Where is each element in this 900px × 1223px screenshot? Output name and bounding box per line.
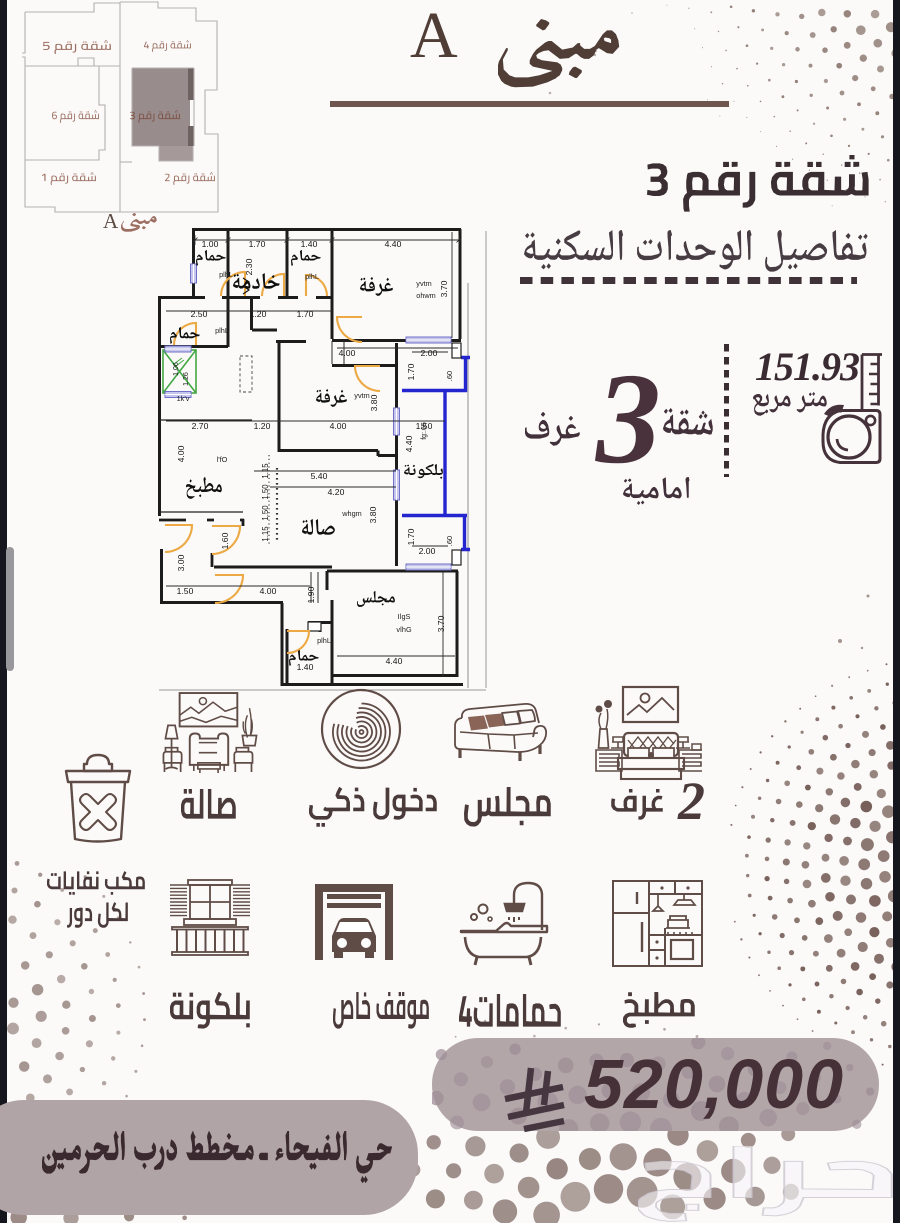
svg-text:.60: .60 xyxy=(445,371,454,381)
svg-text:ohwm: ohwm xyxy=(416,291,435,300)
svg-text:1.26: 1.26 xyxy=(183,372,190,386)
svg-text:4.20: 4.20 xyxy=(328,487,345,497)
svg-text:3.70: 3.70 xyxy=(439,280,449,297)
svg-text:plhL: plhL xyxy=(305,272,319,281)
svg-text:4.40: 4.40 xyxy=(385,239,402,249)
svg-text:1.06: 1.06 xyxy=(173,362,180,376)
svg-text:vǀhG: vǀhG xyxy=(396,625,412,634)
svg-text:plhL: plhL xyxy=(317,636,331,645)
svg-text:yvtm: yvtm xyxy=(354,391,369,400)
svg-text:fg:.65: fg:.65 xyxy=(421,422,428,440)
svg-text:1.20: 1.20 xyxy=(250,309,267,319)
svg-text:1.15: 1.15 xyxy=(261,463,270,479)
svg-text:4.40: 4.40 xyxy=(404,435,414,452)
svg-text:l'fO: l'fO xyxy=(217,455,228,464)
svg-text:4.40: 4.40 xyxy=(386,656,403,666)
svg-text:plhL: plhL xyxy=(219,270,233,279)
svg-text:1.50: 1.50 xyxy=(261,505,270,521)
svg-text:1.40: 1.40 xyxy=(297,662,314,672)
svg-text:1.40: 1.40 xyxy=(301,239,318,249)
svg-text:whgm: whgm xyxy=(341,509,361,518)
svg-text:3.00: 3.00 xyxy=(176,554,186,571)
svg-text:2.00: 2.00 xyxy=(419,546,436,556)
svg-text:2.50: 2.50 xyxy=(191,309,208,319)
svg-text:1.15: 1.15 xyxy=(261,526,270,542)
svg-text:4.00: 4.00 xyxy=(260,586,277,596)
svg-text:1.70: 1.70 xyxy=(249,239,266,249)
svg-text:2.30: 2.30 xyxy=(244,258,254,275)
svg-text:2.00: 2.00 xyxy=(421,348,438,358)
svg-text:1k'v: 1k'v xyxy=(177,394,190,403)
svg-text:4.00: 4.00 xyxy=(339,348,356,358)
svg-text:1.90: 1.90 xyxy=(306,586,316,603)
svg-text:1.50: 1.50 xyxy=(177,586,194,596)
svg-text:1.00: 1.00 xyxy=(202,239,219,249)
svg-text:1.20: 1.20 xyxy=(254,421,271,431)
svg-text:.60: .60 xyxy=(445,536,454,546)
svg-text:1.70: 1.70 xyxy=(297,309,314,319)
svg-text:1.70: 1.70 xyxy=(406,363,416,380)
svg-text:4.00: 4.00 xyxy=(176,445,186,462)
svg-text:plhL: plhL xyxy=(215,326,229,335)
svg-text:IǀgS: IǀgS xyxy=(398,612,411,621)
svg-text:1.70: 1.70 xyxy=(406,528,416,545)
svg-text:3.70: 3.70 xyxy=(436,615,446,632)
svg-text:1.60: 1.60 xyxy=(220,532,230,549)
svg-text:5.40: 5.40 xyxy=(311,471,328,481)
svg-text:yvtm: yvtm xyxy=(416,279,431,288)
svg-text:4.00: 4.00 xyxy=(330,421,347,431)
svg-text:2.70: 2.70 xyxy=(192,421,209,431)
svg-text:1.50: 1.50 xyxy=(261,484,270,500)
svg-text:3.80: 3.80 xyxy=(369,394,379,411)
svg-text:3.80: 3.80 xyxy=(368,506,378,523)
